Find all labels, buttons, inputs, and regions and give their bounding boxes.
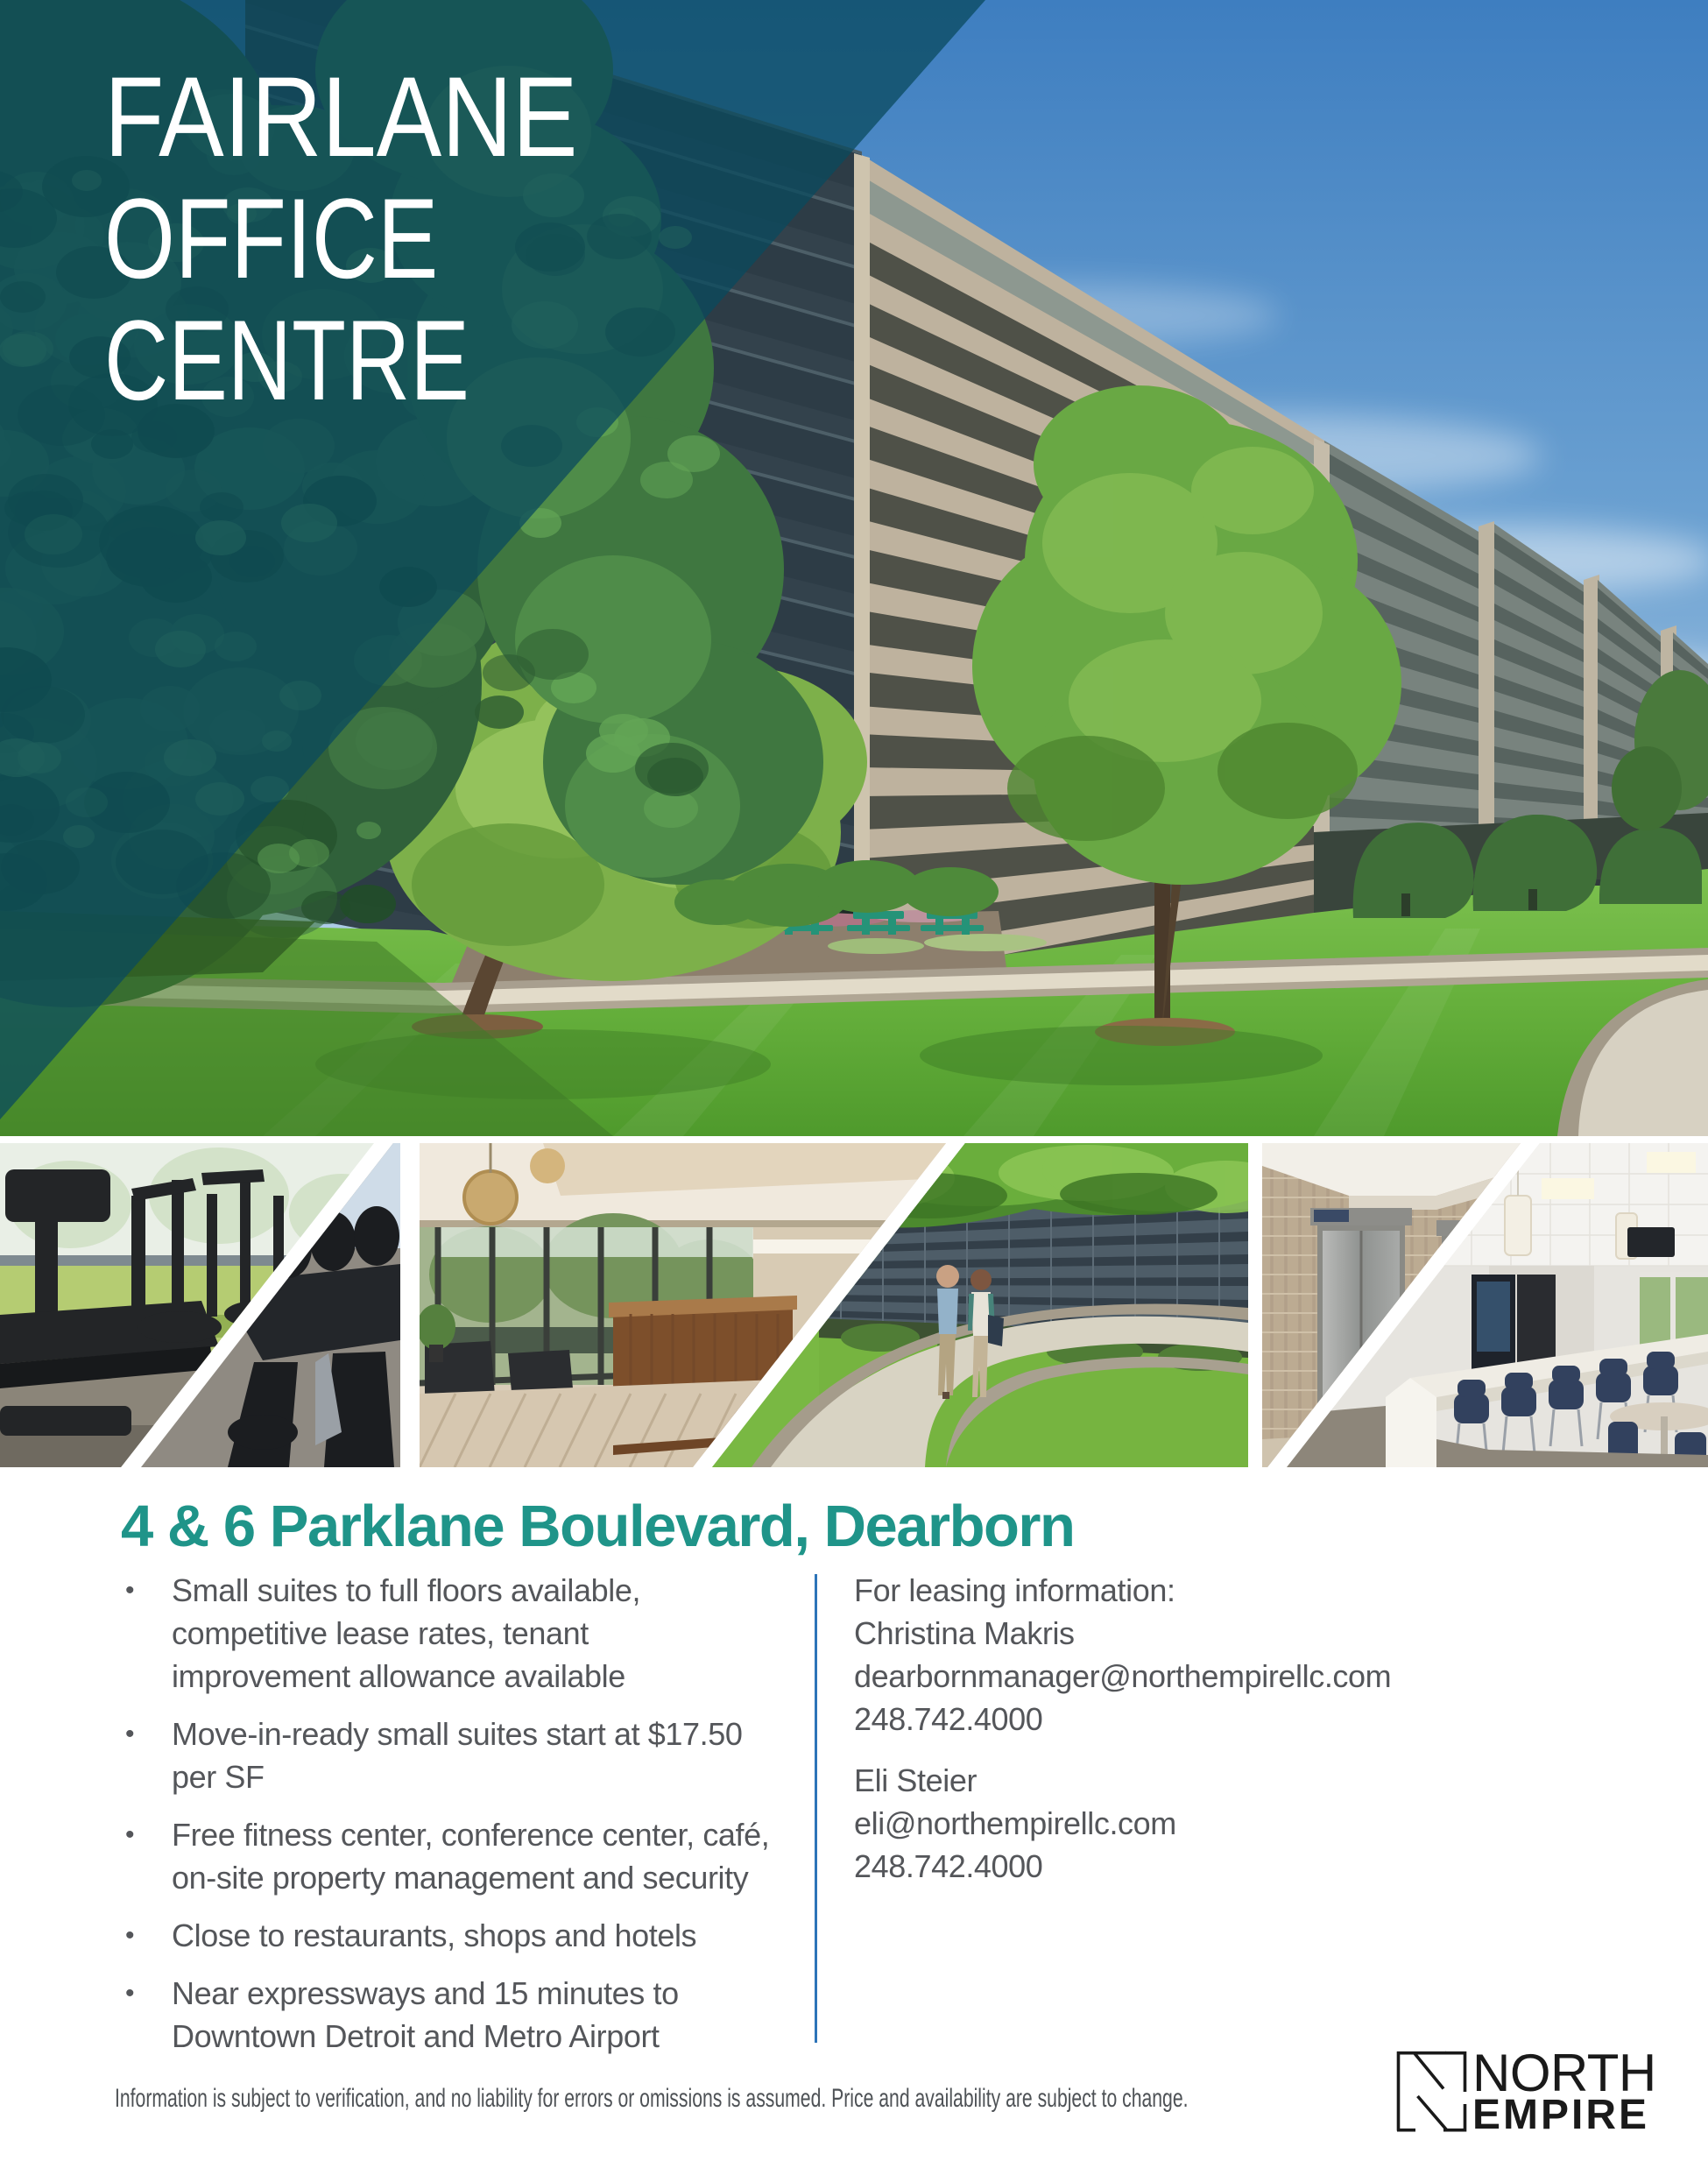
svg-text:OFFICE: OFFICE — [104, 174, 438, 302]
svg-text:FAIRLANE: FAIRLANE — [104, 53, 578, 180]
svg-text:CENTRE: CENTRE — [104, 296, 469, 424]
svg-text:EMPIRE: EMPIRE — [1472, 2092, 1649, 2132]
